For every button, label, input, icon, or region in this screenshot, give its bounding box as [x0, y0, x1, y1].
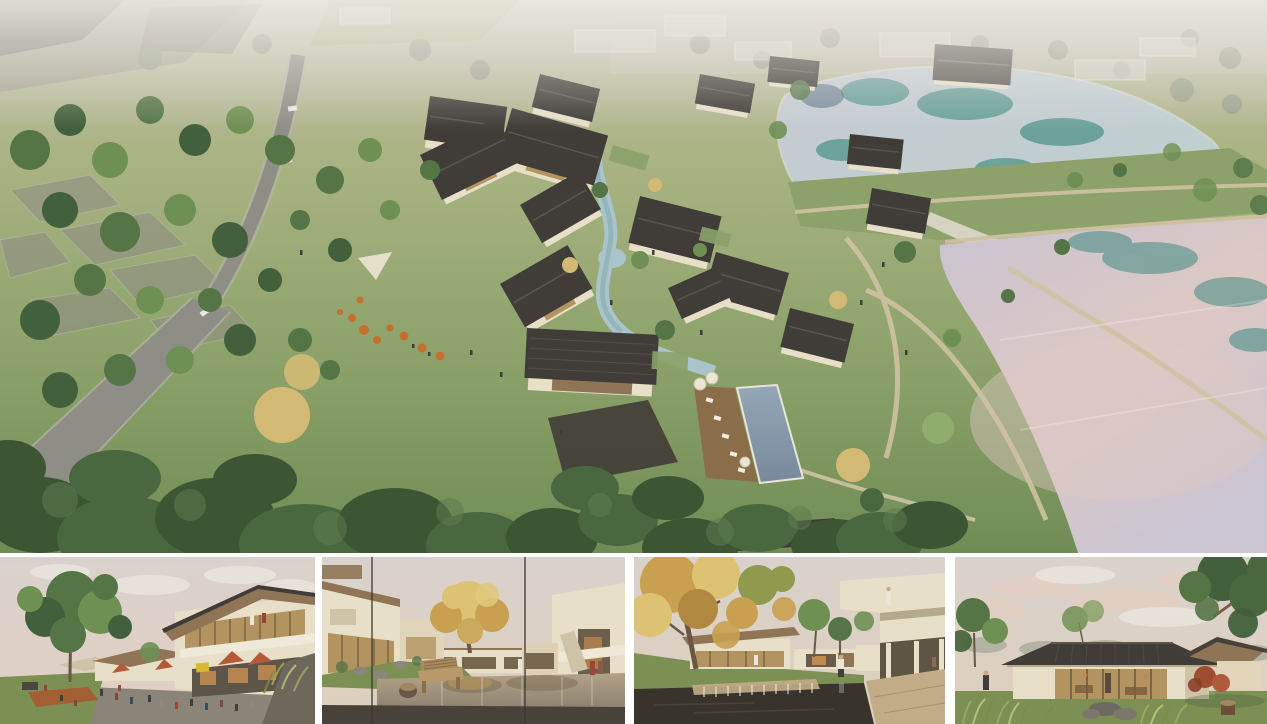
- atmospheric-haze: [0, 0, 1267, 130]
- thumbnail-waterfall-garden: [634, 557, 945, 724]
- parked-car: [22, 682, 38, 690]
- foreground-deck: [322, 705, 625, 724]
- rendering-collage: [0, 0, 1267, 724]
- aerial-scene: [0, 0, 1267, 553]
- tree-stump: [1220, 700, 1236, 715]
- center-buildings: [794, 649, 856, 669]
- shop-sign: [196, 662, 210, 672]
- waterfall-garden-scene: [634, 557, 945, 724]
- central-house: [524, 328, 659, 397]
- thumbnail-pond-courtyard: [322, 557, 625, 724]
- thumbnail-pavilion-lawn: [955, 557, 1267, 724]
- aerial-masterplan-rendering: [0, 0, 1267, 553]
- balcony-figure: [262, 613, 266, 623]
- street-plaza-scene: [0, 557, 315, 724]
- standing-person: [983, 671, 989, 691]
- interior-figure: [1105, 673, 1111, 693]
- thumbnail-street-plaza: [0, 557, 315, 724]
- pond-courtyard-scene: [322, 557, 625, 724]
- balcony-figure: [886, 591, 891, 605]
- balcony-figure: [250, 615, 254, 625]
- pavilion-lawn-scene: [955, 557, 1267, 724]
